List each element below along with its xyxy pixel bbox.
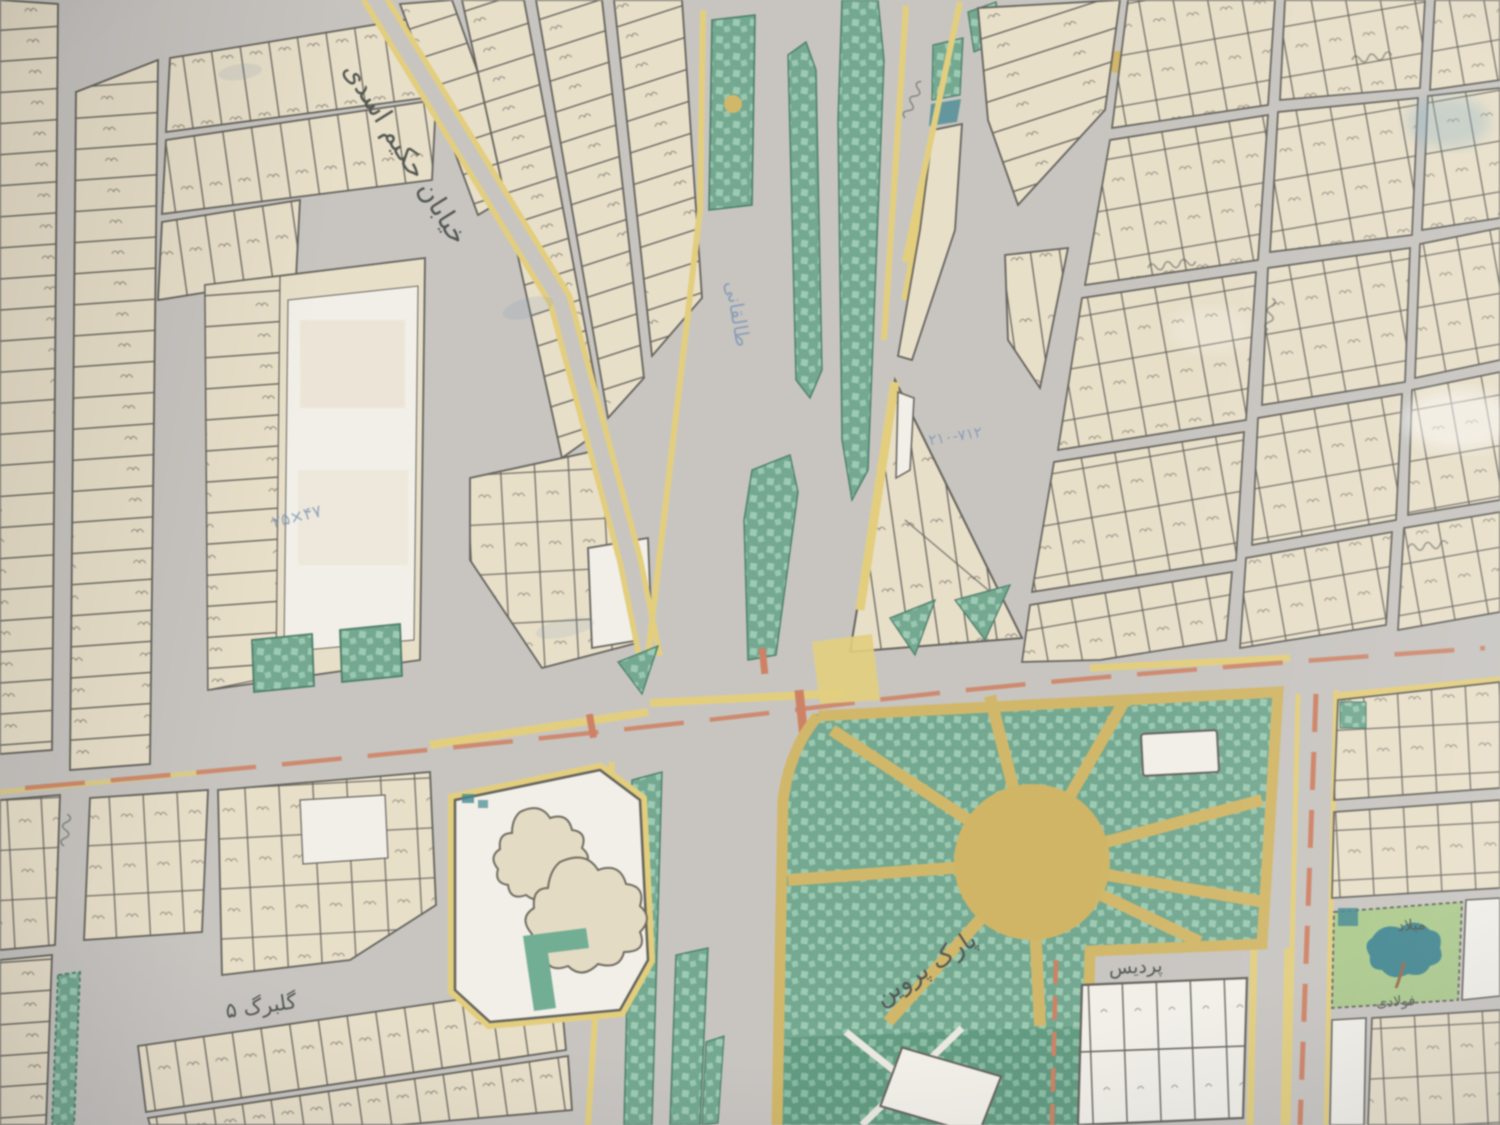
teal-mark — [478, 800, 488, 808]
parcel-block — [1270, 98, 1418, 252]
garden-parcel — [455, 770, 648, 1022]
park-building — [1141, 730, 1219, 776]
teal-mark — [462, 794, 474, 803]
sheen-blue — [1406, 96, 1490, 148]
parcel-block — [0, 0, 58, 754]
green-courtyard — [252, 634, 314, 692]
green-parcel — [1340, 702, 1366, 728]
parcel-block — [1058, 272, 1256, 450]
median-plaza-dot — [724, 95, 742, 113]
parcel-block — [1252, 394, 1402, 545]
parcel-block-white — [1462, 898, 1500, 1000]
street-label-fooladi: فولادی — [1376, 993, 1416, 1011]
parcel-block — [1334, 682, 1500, 800]
parcel-block — [1368, 1010, 1500, 1125]
parcel-block — [1332, 800, 1500, 898]
park-label-milad: میلاد — [1397, 915, 1426, 935]
parcel-block — [1430, 0, 1500, 90]
parcel-block — [1280, 0, 1425, 100]
parcel-block — [1262, 248, 1410, 405]
parcel-block-white — [300, 795, 388, 864]
city-map-photo: خیابان حکیم اسدی طالقانی گلبرگ ۵ پارک پر… — [0, 0, 1500, 1125]
sheen-white — [1170, 308, 1250, 352]
parcel-block-white — [1330, 1018, 1366, 1125]
parcel-block — [1085, 115, 1268, 285]
yellow-island — [812, 634, 880, 704]
green-courtyard — [340, 624, 402, 682]
parcel-block — [1415, 228, 1500, 378]
parcel-block — [0, 955, 52, 1125]
facility-block — [205, 258, 425, 692]
park-central-plaza — [954, 784, 1110, 940]
parcel-block — [70, 60, 158, 770]
street-label-pardis: پردیس — [1108, 955, 1163, 980]
teal-parcel — [1338, 908, 1358, 926]
parcel-block — [1398, 512, 1500, 630]
parcel-block — [0, 795, 60, 950]
map-canvas: خیابان حکیم اسدی طالقانی گلبرگ ۵ پارک پر… — [0, 0, 1500, 1125]
parcel-block — [84, 790, 208, 940]
